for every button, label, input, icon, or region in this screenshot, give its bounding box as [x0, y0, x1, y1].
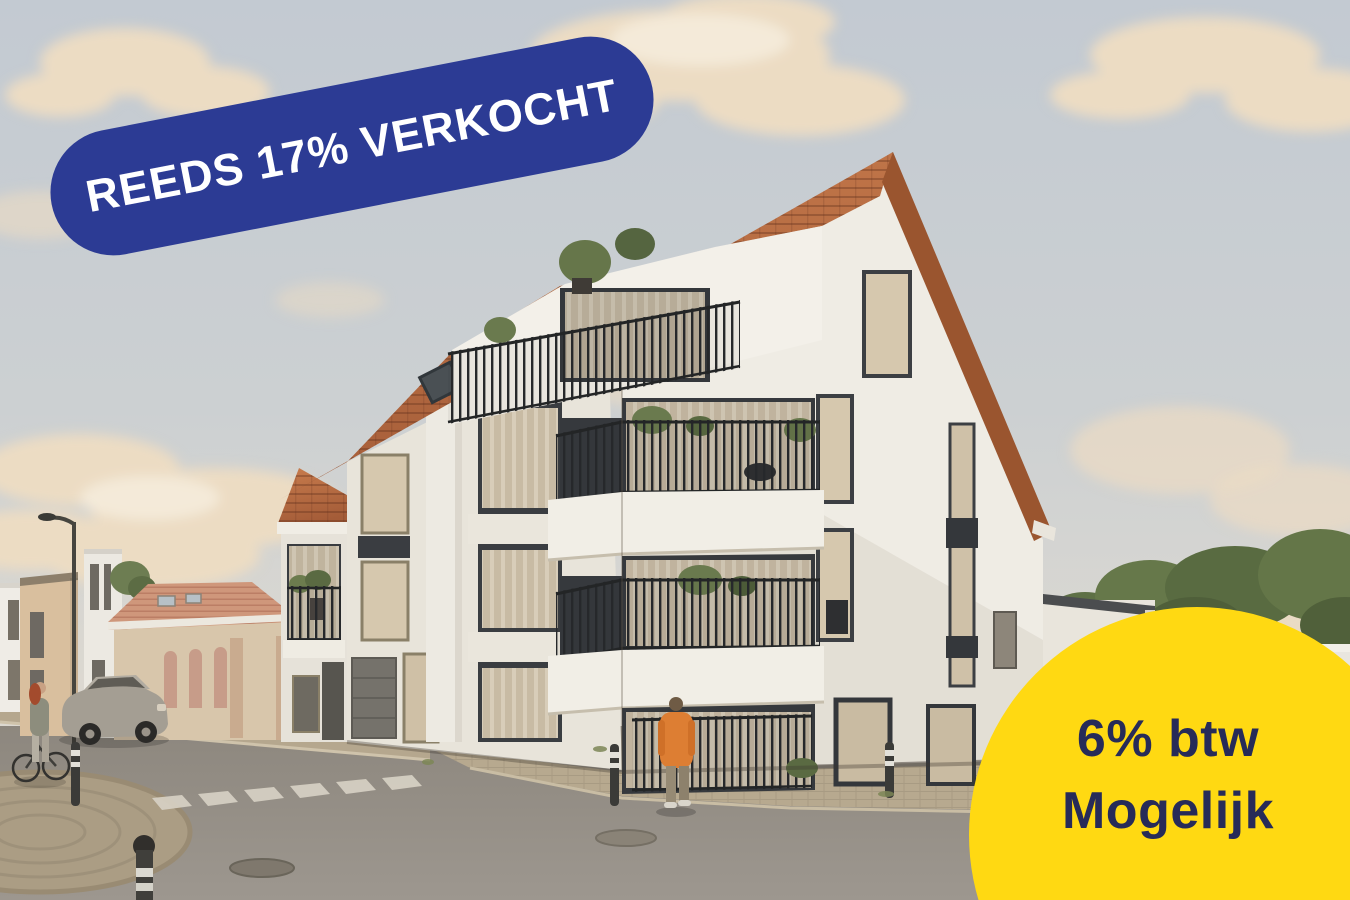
cloud: [695, 64, 905, 136]
jacket-arm: [688, 720, 695, 756]
bollard: [610, 744, 619, 806]
cloud: [5, 73, 115, 117]
lamp-head: [38, 513, 56, 521]
window: [104, 564, 111, 610]
spandrel-dark: [946, 518, 978, 548]
skylight: [186, 594, 201, 603]
wing-window: [293, 676, 319, 732]
bollard-band: [71, 762, 80, 767]
car-taillight: [157, 704, 166, 711]
wing-door: [322, 662, 344, 740]
cyclist-hair: [29, 683, 41, 705]
pedestrian-leg: [679, 766, 689, 802]
wing-railing: [287, 586, 341, 642]
wing-fascia: [277, 522, 352, 534]
bay-curtain: [482, 408, 558, 508]
left-wing: [277, 468, 352, 742]
balcony-chair: [826, 600, 848, 634]
blind-arch-window: [189, 649, 202, 708]
bollard: [885, 742, 894, 798]
weed-tuft: [878, 791, 894, 797]
bollard: [71, 742, 80, 806]
roof-edge: [84, 549, 122, 554]
jacket-arm: [658, 720, 665, 756]
bollard-band: [136, 883, 153, 891]
bay-curtain: [482, 550, 558, 628]
bollard-band: [71, 750, 80, 756]
bollard-band: [885, 750, 894, 756]
skylight: [158, 596, 175, 606]
terrace-plant: [484, 317, 516, 343]
cloud: [1050, 71, 1190, 119]
cloud: [275, 282, 385, 318]
blind-arch-window: [214, 647, 227, 708]
window-small: [994, 612, 1016, 668]
bollard-band: [885, 761, 894, 766]
cloud-highlight: [80, 476, 220, 520]
marketing-image: REEDS 17% VERKOCHT 6% btw Mogelijk: [0, 0, 1350, 900]
vat-badge-text: 6% btw Mogelijk: [940, 703, 1350, 847]
window: [30, 612, 44, 658]
window: [362, 455, 408, 533]
pedestrian-shoe: [664, 802, 677, 808]
window: [818, 396, 852, 502]
pedestrian-shadow: [656, 807, 696, 817]
window: [90, 564, 99, 610]
spandrel-dark: [358, 536, 410, 558]
planter-pot: [572, 278, 592, 294]
bollard-band: [610, 763, 619, 768]
brick-pilaster: [230, 638, 243, 738]
car-hubcap: [86, 730, 95, 739]
bollard-band: [136, 868, 153, 877]
car-hubcap: [142, 728, 151, 737]
pedestrian-leg: [666, 766, 676, 804]
vat-badge-line1: 6% btw: [940, 703, 1350, 775]
manhole-cover: [596, 830, 656, 846]
wing-parapet: [283, 640, 345, 658]
bay-curtain: [482, 668, 558, 738]
pilaster-shade: [455, 400, 462, 742]
terrace-plant: [559, 240, 611, 284]
vat-badge-line2: Mogelijk: [940, 775, 1350, 847]
window: [836, 700, 890, 784]
window: [362, 562, 408, 640]
window: [8, 600, 19, 640]
weed-tuft: [422, 759, 434, 765]
weed-tuft: [593, 746, 607, 752]
attic-window: [864, 272, 910, 376]
bollard-band: [610, 752, 619, 758]
spandrel-dark: [946, 636, 978, 658]
bollard-ball-top: [133, 835, 155, 900]
manhole-cover: [230, 859, 294, 877]
pedestrian-head: [669, 697, 683, 711]
terrace-plant: [615, 228, 655, 260]
pedestrian-shoe: [678, 800, 691, 806]
blind-arch-window: [164, 651, 177, 708]
